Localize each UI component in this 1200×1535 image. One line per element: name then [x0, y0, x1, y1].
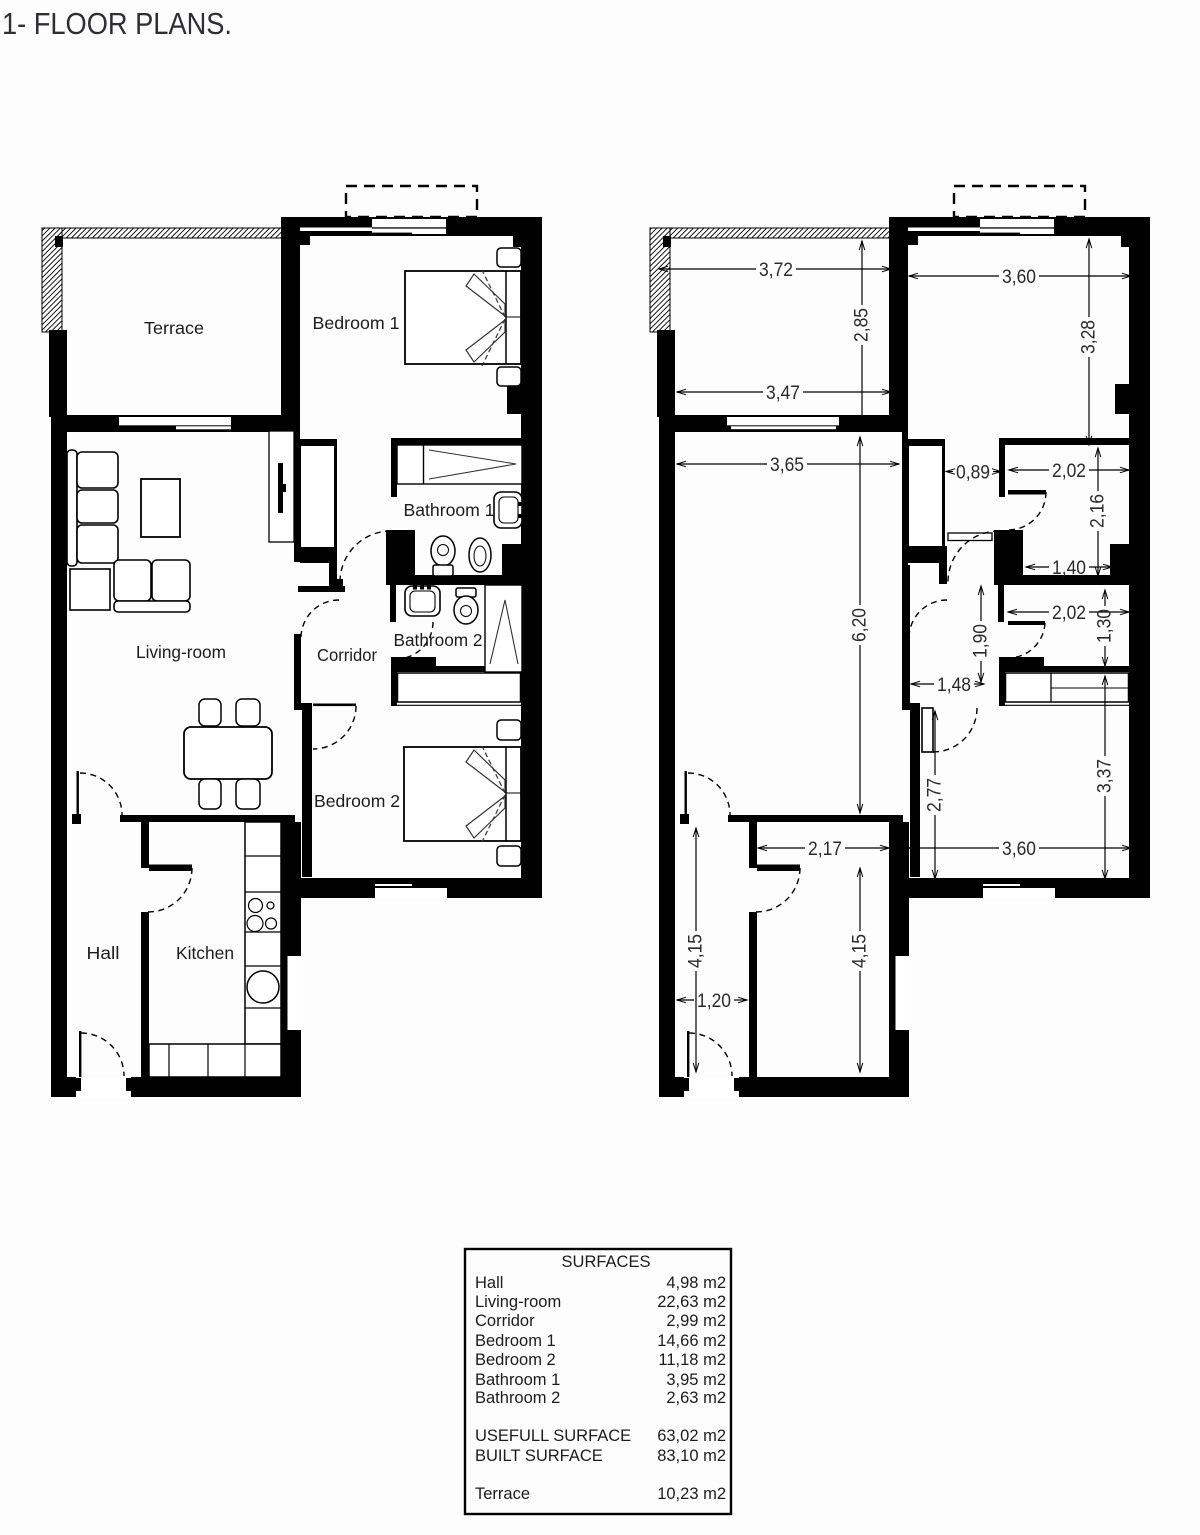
- svg-text:6,20: 6,20: [850, 608, 871, 642]
- svg-text:Corridor: Corridor: [317, 645, 377, 665]
- svg-text:1,40: 1,40: [1052, 558, 1086, 579]
- svg-text:2,85: 2,85: [852, 308, 873, 342]
- svg-text:3,65: 3,65: [770, 455, 804, 476]
- svg-text:3,28: 3,28: [1079, 320, 1100, 354]
- svg-text:4,98 m2: 4,98 m2: [666, 1274, 726, 1292]
- svg-text:Hall: Hall: [475, 1274, 503, 1292]
- svg-text:USEFULL SURFACE: USEFULL SURFACE: [475, 1427, 631, 1445]
- svg-text:BUILT SURFACE: BUILT SURFACE: [475, 1447, 603, 1465]
- svg-text:Living-room: Living-room: [475, 1293, 561, 1311]
- svg-text:Bedroom 1: Bedroom 1: [313, 313, 400, 333]
- svg-text:1,48: 1,48: [937, 675, 971, 696]
- svg-text:SURFACES: SURFACES: [562, 1253, 651, 1271]
- svg-text:2,02: 2,02: [1052, 461, 1086, 482]
- svg-text:Corridor: Corridor: [475, 1312, 535, 1330]
- svg-text:2,17: 2,17: [808, 839, 842, 860]
- svg-text:4,15: 4,15: [850, 934, 871, 968]
- svg-text:1- FLOOR PLANS.: 1- FLOOR PLANS.: [2, 6, 232, 41]
- svg-text:1,20: 1,20: [697, 991, 731, 1012]
- svg-text:2,63 m2: 2,63 m2: [666, 1389, 726, 1407]
- svg-text:Hall: Hall: [87, 943, 120, 963]
- svg-text:3,72: 3,72: [759, 260, 793, 281]
- svg-text:2,02: 2,02: [1052, 603, 1086, 624]
- svg-text:3,37: 3,37: [1095, 759, 1116, 793]
- svg-text:Bedroom 1: Bedroom 1: [475, 1332, 556, 1350]
- svg-text:2,77: 2,77: [925, 778, 946, 812]
- svg-text:Bathroom 2: Bathroom 2: [394, 630, 483, 650]
- svg-text:1,30: 1,30: [1095, 609, 1116, 643]
- svg-text:Bedroom 2: Bedroom 2: [314, 791, 400, 811]
- svg-text:1,90: 1,90: [971, 624, 992, 658]
- svg-text:3,60: 3,60: [1002, 839, 1036, 860]
- svg-text:3,47: 3,47: [766, 383, 800, 404]
- svg-text:Bedroom 2: Bedroom 2: [475, 1351, 556, 1369]
- svg-text:Bathroom 1: Bathroom 1: [475, 1371, 560, 1389]
- svg-text:10,23 m2: 10,23 m2: [657, 1485, 726, 1503]
- svg-text:Kitchen: Kitchen: [176, 943, 234, 963]
- svg-text:2,99 m2: 2,99 m2: [666, 1312, 726, 1330]
- svg-text:2,16: 2,16: [1088, 494, 1109, 528]
- svg-text:4,15: 4,15: [686, 934, 707, 968]
- svg-text:83,10 m2: 83,10 m2: [657, 1447, 726, 1465]
- svg-text:14,66 m2: 14,66 m2: [657, 1332, 726, 1350]
- svg-text:Terrace: Terrace: [144, 318, 204, 338]
- svg-text:3,60: 3,60: [1002, 267, 1036, 288]
- svg-text:3,95 m2: 3,95 m2: [666, 1371, 726, 1389]
- svg-text:Bathroom 1: Bathroom 1: [404, 500, 495, 520]
- svg-text:11,18 m2: 11,18 m2: [658, 1351, 726, 1369]
- svg-text:Bathroom 2: Bathroom 2: [475, 1389, 560, 1407]
- svg-text:63,02 m2: 63,02 m2: [657, 1427, 726, 1445]
- svg-text:Terrace: Terrace: [475, 1485, 530, 1503]
- svg-text:Living-room: Living-room: [136, 642, 226, 662]
- svg-text:22,63 m2: 22,63 m2: [657, 1293, 726, 1311]
- svg-text:0,89: 0,89: [956, 463, 990, 484]
